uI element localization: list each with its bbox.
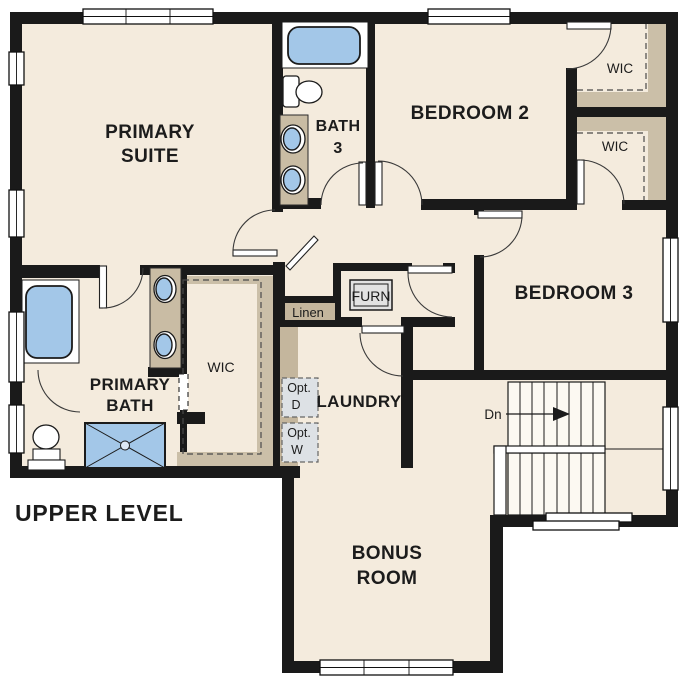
wall: [490, 515, 503, 673]
window: [9, 190, 24, 237]
window: [533, 513, 632, 530]
stairs-rail-mid: [494, 446, 605, 453]
bath3-toilet-bowl: [296, 81, 322, 103]
primary-sink-2: [156, 334, 172, 356]
window: [9, 312, 24, 382]
wall: [177, 412, 205, 424]
wic3-shelf-east: [648, 131, 666, 200]
label-furnace: FURN: [352, 288, 391, 304]
window: [9, 52, 24, 85]
wall: [401, 370, 666, 380]
room-label-primary-bath-2: BATH: [106, 396, 154, 415]
primary-toilet-tank: [33, 449, 60, 460]
floor-plan-canvas: PRIMARY SUITE BATH 3 BEDROOM 2 WIC WIC B…: [0, 0, 687, 687]
bath3-sink-1: [284, 128, 301, 150]
primary-wic-shelf-east: [257, 276, 273, 452]
bath3-bathtub: [288, 27, 360, 64]
room-label-wic-bedroom3: WIC: [602, 139, 628, 154]
room-label-primary-suite-1: PRIMARY: [105, 122, 195, 143]
room-label-bedroom3: BEDROOM 3: [515, 283, 634, 304]
label-opt-dryer-1: Opt.: [287, 381, 311, 395]
window: [663, 238, 678, 322]
room-label-bonus-1: BONUS: [352, 543, 423, 564]
room-label-laundry: LAUNDRY: [316, 392, 402, 411]
page-title: UPPER LEVEL: [15, 500, 184, 526]
wall: [276, 320, 335, 327]
room-label-primary-bath-1: PRIMARY: [90, 375, 171, 394]
window: [663, 407, 678, 490]
label-stairs-down: Dn: [484, 407, 501, 422]
room-label-wic-bedroom2: WIC: [607, 61, 633, 76]
wall: [282, 460, 294, 673]
wall: [566, 107, 666, 117]
bath3-sink-2: [284, 169, 301, 191]
wall: [333, 263, 412, 271]
room-label-bonus-2: ROOM: [357, 568, 418, 589]
wall: [276, 296, 335, 303]
label-opt-washer-2: W: [291, 443, 303, 457]
primary-shower: [85, 423, 165, 468]
primary-wic-entry-dash: [179, 374, 188, 410]
room-label-wic-primary: WIC: [207, 359, 234, 375]
room-label-bath3-1: BATH: [316, 118, 361, 135]
window: [9, 405, 24, 453]
label-opt-washer-1: Opt.: [287, 426, 311, 440]
wall: [333, 317, 362, 327]
wic2-shelf-south: [577, 92, 666, 107]
wall: [22, 265, 100, 278]
primary-bathtub: [26, 286, 72, 358]
wall: [566, 68, 577, 210]
wall: [474, 255, 484, 380]
primary-toilet-base: [28, 460, 65, 470]
room-label-bedroom2: BEDROOM 2: [411, 103, 530, 124]
window: [83, 9, 213, 24]
wall: [404, 317, 455, 327]
window: [428, 9, 510, 24]
floor-plan-page: PRIMARY SUITE BATH 3 BEDROOM 2 WIC WIC B…: [0, 0, 687, 687]
label-opt-dryer-2: D: [291, 398, 300, 412]
wall: [401, 317, 413, 468]
primary-toilet-bowl: [33, 425, 59, 449]
room-label-bath3-2: 3: [333, 140, 342, 157]
wall: [622, 200, 666, 210]
wic2-shelf-east: [648, 24, 666, 92]
stairs-rail-left: [494, 446, 506, 515]
wall: [421, 199, 577, 210]
label-linen: Linen: [292, 305, 324, 320]
primary-sink-1: [156, 278, 172, 300]
window: [320, 660, 453, 675]
room-label-primary-suite-2: SUITE: [121, 146, 179, 167]
wic3-shelf-north: [577, 117, 666, 131]
